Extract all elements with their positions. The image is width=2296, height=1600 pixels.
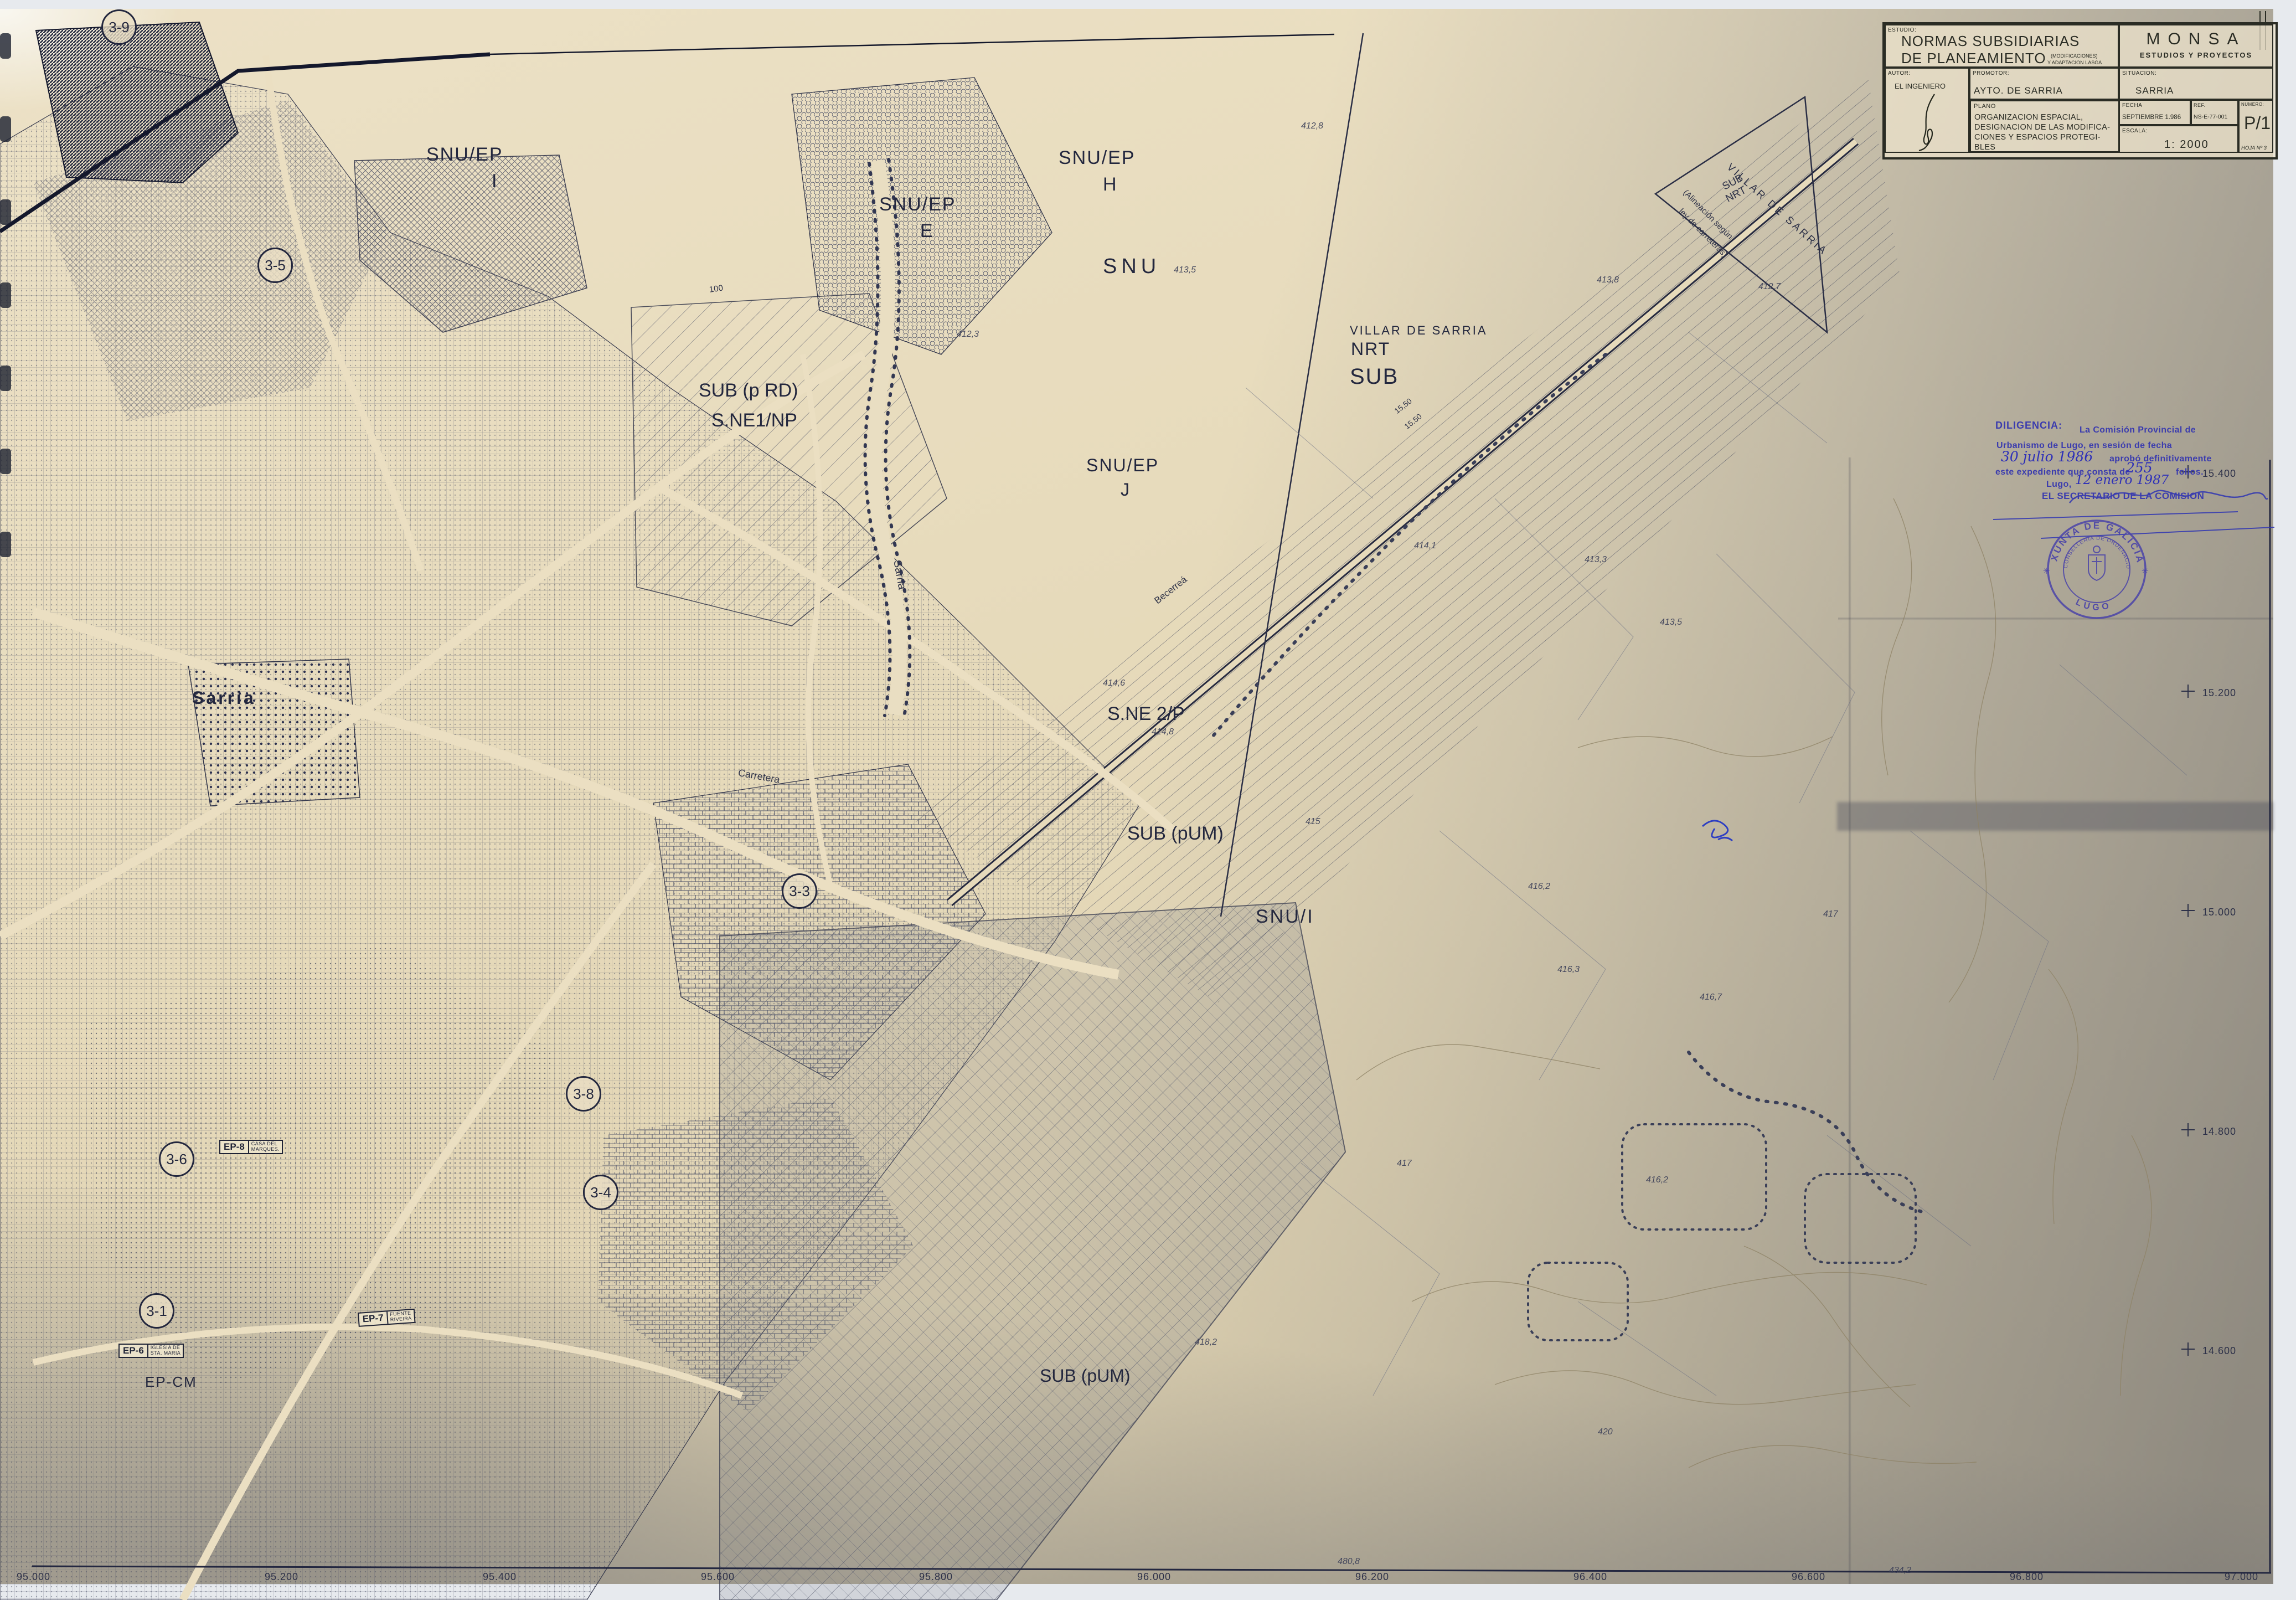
spot-height-label: 418,2 <box>1195 1338 1217 1347</box>
diligencia-handwritten-date2: 12 enero 1987 <box>2075 473 2169 487</box>
diligencia-line3: aprobó definitivamente <box>2109 454 2212 464</box>
diligencia-line5: folios. <box>2176 467 2204 477</box>
spot-height-label: 414,1 <box>1414 542 1436 551</box>
escala-label: ESCALA: <box>2122 128 2148 134</box>
diligencia-block: DILIGENCIA: La Comisión Provincial de Ur… <box>1991 416 2262 533</box>
spot-height-label: 416,2 <box>1646 1176 1668 1185</box>
zone-label: SNU/I <box>1256 907 1314 926</box>
grid-coordinate-y: 15.200 <box>2202 688 2236 698</box>
grid-coordinate-x: 95.200 <box>265 1572 298 1582</box>
grid-coordinate-x: 96.000 <box>1137 1572 1171 1582</box>
circled-number: 3-5 <box>257 248 293 283</box>
grid-coordinate-x: 96.400 <box>1573 1572 1607 1582</box>
grid-coordinate-y: 15.000 <box>2202 907 2236 917</box>
protected-element-box: EP-7FUENTERIVEIRA <box>358 1309 415 1327</box>
diligencia-line6: Lugo, <box>2046 480 2072 490</box>
circled-number: 3-9 <box>101 9 137 45</box>
firm-subtitle: ESTUDIOS Y PROYECTOS <box>2120 51 2272 59</box>
title-block: ESTUDIO: NORMAS SUBSIDIARIAS DE PLANEAMI… <box>1882 22 2278 160</box>
protected-element-code: EP-6 <box>120 1345 147 1357</box>
zone-label: E <box>920 222 933 240</box>
road-label: 100 <box>709 284 724 294</box>
promotor-label: PROMOTOR: <box>1973 70 2009 76</box>
spot-height-label: 413,3 <box>1585 555 1607 564</box>
road-label: 15,50 <box>1393 397 1413 415</box>
spot-height-label: 480,8 <box>1338 1557 1360 1566</box>
zone-label: I <box>492 172 497 191</box>
fecha-value: SEPTIEMBRE 1.986 <box>2122 114 2181 121</box>
numero-label: NUMERO: <box>2241 102 2264 107</box>
zone-label: Sarria <box>192 689 256 707</box>
zone-label: S.NE 2/P <box>1107 704 1185 723</box>
estudio-title-line1: NORMAS SUBSIDIARIAS <box>1901 33 2080 50</box>
zone-label: SUB (pUM) <box>1040 1367 1131 1385</box>
scanned-planning-map: XUNTA DE GALICIA CONSELLERIA DE ORDENACI… <box>0 0 2296 1600</box>
firm-cell: MONSA ESTUDIOS Y PROYECTOS <box>2119 24 2273 68</box>
spot-height-label: 414,6 <box>1103 679 1125 688</box>
spot-height-label: 413,8 <box>1597 276 1619 285</box>
plano-cell: PLANO ORGANIZACION ESPACIAL, DESIGNACION… <box>1969 100 2120 153</box>
zone-label: SNU <box>1103 256 1160 277</box>
zone-label: VILLAR DE SARRIA <box>1350 325 1488 337</box>
situacion-cell: SITUACION: SARRIA <box>2119 68 2273 100</box>
numero-value: P/1 <box>2244 113 2271 133</box>
engineer-signature <box>1896 91 1962 152</box>
spot-height-label: 413,5 <box>1174 266 1196 275</box>
grid-coordinate-x: 95.400 <box>483 1572 517 1582</box>
protected-element-box: EP-6IGLESIA DESTA. MARIA <box>118 1344 184 1358</box>
zone-label: SNU/EP <box>879 195 956 214</box>
plano-line2: DESIGNACION DE LAS MODIFICA- <box>1974 122 2110 132</box>
zone-label: SUB (p RD) <box>699 381 798 400</box>
promotor-value: AYTO. DE SARRIA <box>1974 85 2063 96</box>
protected-element-code: EP-8 <box>220 1141 248 1153</box>
road-label: Becerreá <box>1153 575 1189 606</box>
grid-coordinate-x: 96.600 <box>1792 1572 1825 1582</box>
protected-element-name: FUENTERIVEIRA <box>386 1310 414 1324</box>
spot-height-label: 416,3 <box>1557 965 1580 974</box>
zone-label: J <box>1121 481 1129 498</box>
protected-element-code: EP-7 <box>359 1311 387 1325</box>
road-label: Sarria <box>891 559 907 590</box>
grid-coordinate-x: 96.800 <box>2010 1572 2044 1582</box>
autor-cell: AUTOR: EL INGENIERO <box>1885 68 1969 153</box>
fecha-label: FECHA <box>2122 102 2142 109</box>
grid-coordinate-x: 96.200 <box>1355 1572 1389 1582</box>
estudio-subtitle1: (MODIFICACIONES) <box>2051 53 2098 59</box>
situacion-label: SITUACION: <box>2122 70 2156 76</box>
ref-cell: REF. NS-E-77-001 <box>2191 100 2238 125</box>
circled-number: 3-3 <box>782 873 817 909</box>
road-label: Carretera <box>737 768 781 785</box>
plano-line1: ORGANIZACION ESPACIAL, <box>1974 112 2110 122</box>
spot-height-label: 412,8 <box>1301 122 1323 131</box>
plano-label: PLANO <box>1974 103 1996 110</box>
escala-cell: ESCALA: 1: 2000 <box>2119 125 2238 153</box>
grid-coordinate-y: 14.600 <box>2202 1346 2236 1356</box>
spot-height-label: 417 <box>1823 910 1838 919</box>
promotor-cell: PROMOTOR: AYTO. DE SARRIA <box>1969 68 2119 100</box>
zone-label: H <box>1103 175 1117 194</box>
spot-height-label: 416,7 <box>1700 993 1722 1002</box>
diligencia-handwritten-date: 30 julio 1986 <box>2001 449 2093 465</box>
spot-height-label: 414,8 <box>1152 728 1174 737</box>
map-label-layer: SNU/EPISNU/EPHSNU/EPESNUSUB (p RD)S.NE1/… <box>0 0 2296 1600</box>
circled-number: 3-1 <box>139 1293 174 1329</box>
plano-line4: BLES <box>1974 142 2110 152</box>
road-label: 15.50 <box>1403 412 1423 430</box>
ref-label: REF. <box>2194 102 2206 108</box>
protected-element-name: IGLESIA DESTA. MARIA <box>147 1345 183 1357</box>
diligencia-heading: DILIGENCIA: <box>1995 420 2062 431</box>
circled-number: 3-8 <box>566 1076 601 1112</box>
fecha-cell: FECHA SEPTIEMBRE 1.986 <box>2119 100 2191 125</box>
protected-element-box: EP-8CASA DELMARQUES. <box>219 1140 283 1154</box>
zone-label: SUB <box>1350 366 1399 388</box>
spot-height-label: 416,2 <box>1528 882 1550 891</box>
spot-height-label: 417 <box>1397 1159 1412 1168</box>
spot-height-label: 412,7 <box>1758 282 1781 291</box>
zone-label: SNU/EP <box>1086 456 1159 474</box>
zone-label: EP-CM <box>145 1375 197 1389</box>
firm-name: MONSA <box>2120 30 2272 49</box>
spot-height-label: 413,5 <box>1660 618 1682 627</box>
zone-label: SNU/EP <box>426 145 503 164</box>
zone-label: NRT <box>1351 340 1390 358</box>
plano-line3: CIONES Y ESPACIOS PROTEGI- <box>1974 132 2110 142</box>
diligencia-line7: EL SECRETARIO DE LA COMISION <box>2042 491 2204 502</box>
estudio-subtitle2: Y ADAPTACION LASGA <box>2047 60 2102 65</box>
situacion-value: SARRIA <box>2135 85 2174 96</box>
circled-number: 3-4 <box>583 1175 618 1210</box>
grid-coordinate-x: 95.000 <box>17 1572 50 1582</box>
numero-cell: NUMERO: P/1 HOJA Nº 3 <box>2238 100 2273 153</box>
diligencia-line1: La Comisión Provincial de <box>2080 425 2196 435</box>
grid-coordinate-x: 97.000 <box>2225 1572 2258 1582</box>
autor-value: EL INGENIERO <box>1895 82 1946 90</box>
zone-label: SUB (pUM) <box>1127 824 1224 843</box>
estudio-title-line2: DE PLANEAMIENTO <box>1901 50 2046 67</box>
hoja-value: HOJA Nº 3 <box>2241 145 2267 151</box>
escala-value: 1: 2000 <box>2164 138 2209 151</box>
zone-label: SNU/EP <box>1059 148 1136 167</box>
circled-number: 3-6 <box>159 1141 194 1177</box>
grid-coordinate-x: 95.800 <box>919 1572 953 1582</box>
grid-coordinate-y: 14.800 <box>2202 1126 2236 1136</box>
spot-height-label: 420 <box>1598 1428 1613 1437</box>
grid-coordinate-x: 95.600 <box>701 1572 735 1582</box>
spot-height-label: 434,2 <box>1889 1566 1911 1575</box>
spot-height-label: 415 <box>1306 817 1320 826</box>
spot-height-label: 412,3 <box>957 330 979 339</box>
zone-label: S.NE1/NP <box>711 411 797 430</box>
autor-label: AUTOR: <box>1888 70 1911 76</box>
protected-element-name: CASA DELMARQUES. <box>248 1141 282 1153</box>
estudio-cell: ESTUDIO: NORMAS SUBSIDIARIAS DE PLANEAMI… <box>1885 24 2119 68</box>
ref-value: NS-E-77-001 <box>2194 114 2227 120</box>
